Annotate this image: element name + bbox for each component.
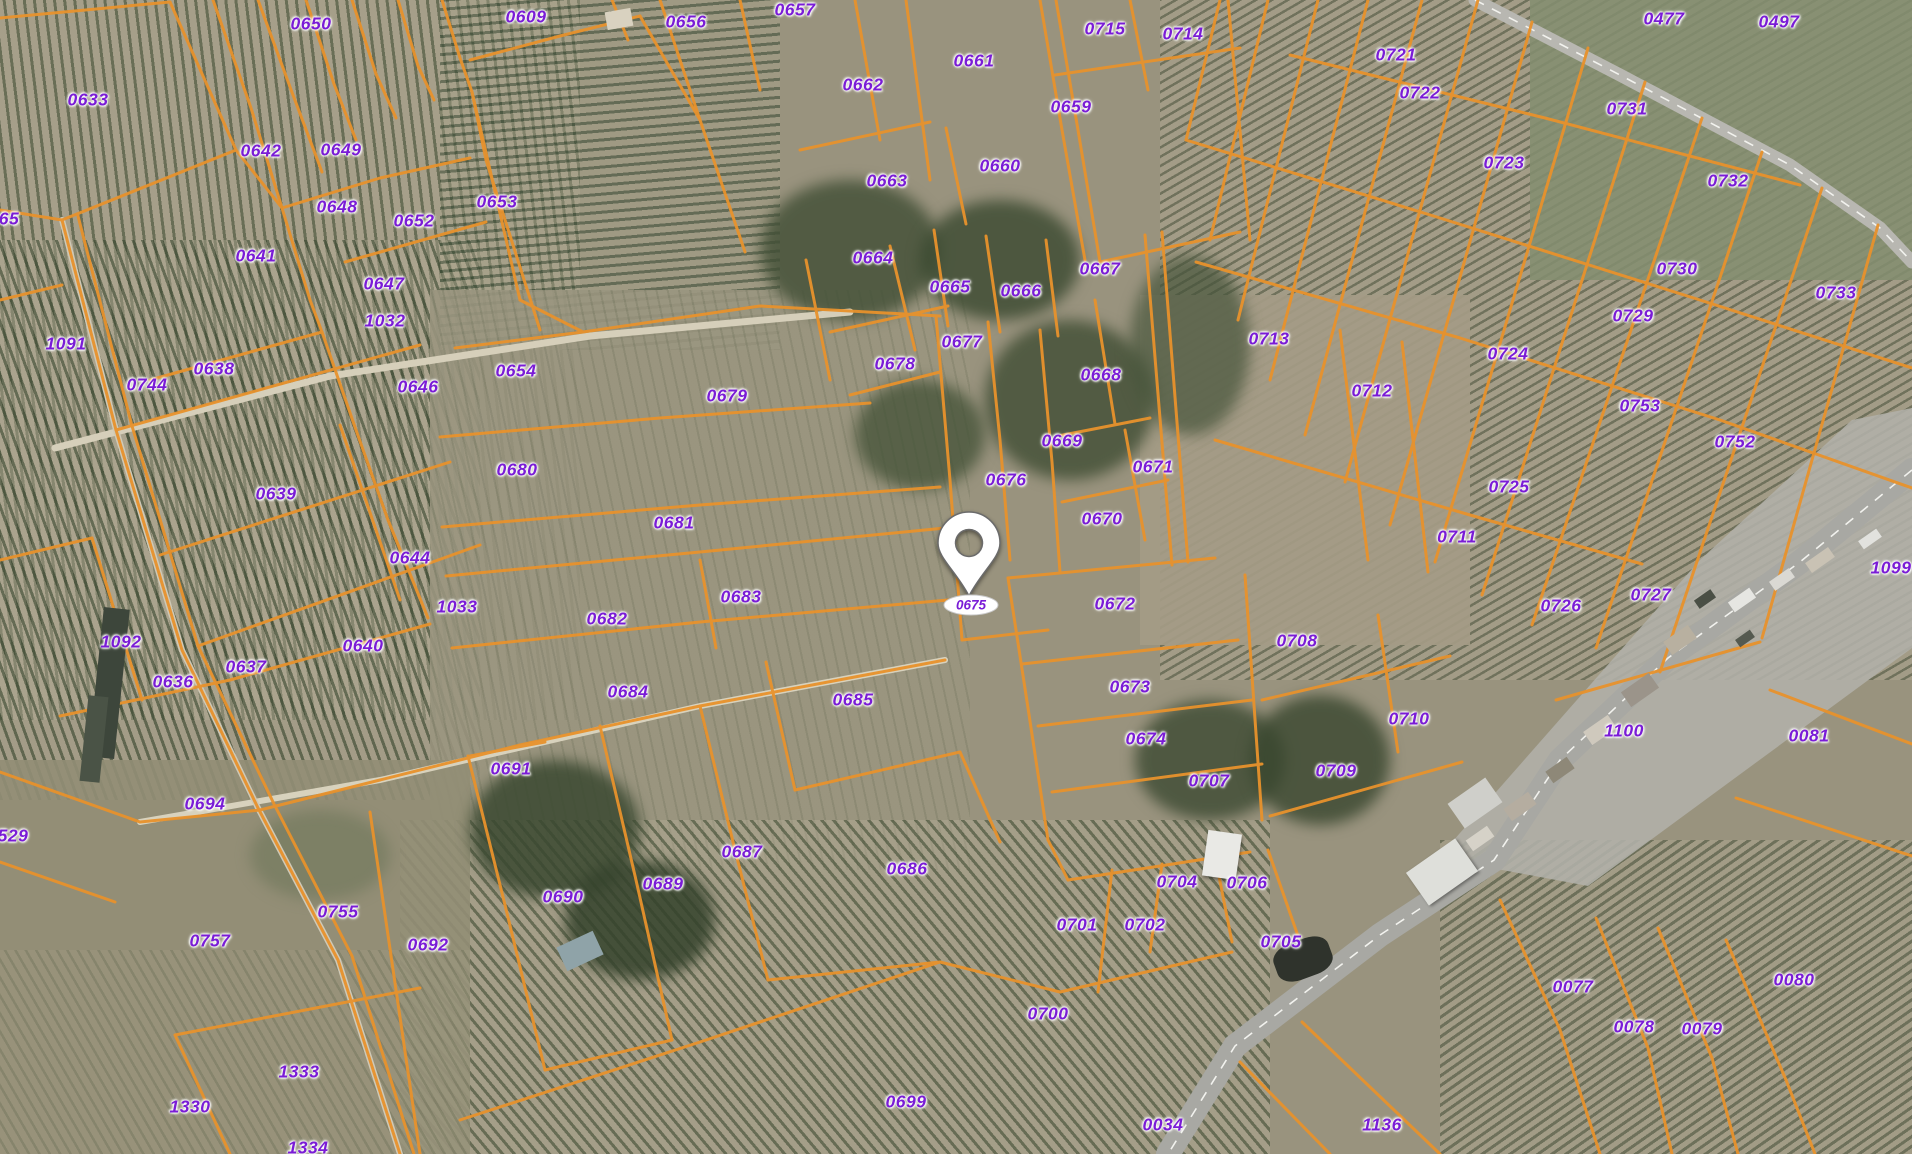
parcel-labels-layer: 0650060906560657066106620715071407210722… <box>0 0 1912 1154</box>
parcel-label: 1091 <box>46 334 87 355</box>
parcel-label: 0731 <box>1607 99 1648 120</box>
greenhouse <box>88 607 130 759</box>
parcel-label: 0078 <box>1614 1017 1655 1038</box>
parcel-label: 0669 <box>1042 431 1083 452</box>
parcel-label: 0640 <box>343 636 384 657</box>
parcel-label: 0670 <box>1082 509 1123 530</box>
parcel-label: 0666 <box>1001 281 1042 302</box>
parcel-label: 0657 <box>775 0 816 21</box>
parcel-label: 0497 <box>1759 12 1800 33</box>
shed <box>556 931 603 971</box>
parcel-label: 0674 <box>1126 729 1167 750</box>
parcel-label: 0678 <box>875 354 916 375</box>
scrap-pile <box>1583 715 1617 745</box>
parcel-label: 0715 <box>1085 19 1126 40</box>
scrap-pile <box>1503 792 1536 821</box>
scrap-pile <box>1663 625 1697 655</box>
parcel-label: 1099 <box>1871 558 1912 579</box>
parcel-label: 0668 <box>1081 365 1122 386</box>
parcel-label: 1330 <box>170 1097 211 1118</box>
parcel-label: 0744 <box>127 375 168 396</box>
field-smooth-0713 <box>1140 295 1470 645</box>
parcel-label: 0722 <box>1400 83 1441 104</box>
parcel-label: 1092 <box>101 632 142 653</box>
parcel-label: 0705 <box>1261 932 1302 953</box>
parcel-label: 0647 <box>364 274 405 295</box>
tree-cluster <box>1135 700 1285 820</box>
shrub-cluster <box>250 810 390 900</box>
parcel-label: 0732 <box>1708 171 1749 192</box>
marker-layer: 0675 <box>0 0 1912 1154</box>
pond <box>1269 931 1336 987</box>
field-smooth-center <box>430 290 970 870</box>
scrap-pile <box>1735 630 1755 648</box>
parcel-label: 0664 <box>853 248 894 269</box>
parcel-label: 0708 <box>1277 631 1318 652</box>
parcel-label: 0701 <box>1057 915 1098 936</box>
scrap-pile <box>1694 589 1716 609</box>
parcel-label: 0077 <box>1553 977 1594 998</box>
parcel-label: 529 <box>0 826 28 847</box>
parcel-label: 0711 <box>1437 527 1477 548</box>
vineyard-texture-bottomcenter <box>400 820 1270 1154</box>
parcel-label: 0656 <box>666 12 707 33</box>
parcel-label: 1333 <box>279 1062 320 1083</box>
parcel-label: 0726 <box>1541 596 1582 617</box>
parcel-label: 0699 <box>886 1092 927 1113</box>
parcel-label: 0646 <box>398 377 439 398</box>
parcel-label: 0639 <box>256 484 297 505</box>
parcel-label: 0633 <box>68 90 109 111</box>
parcel-boundaries <box>0 0 1912 1154</box>
parcel-label: 0709 <box>1316 761 1357 782</box>
parcel-label: 0081 <box>1789 726 1830 747</box>
parcel-label: 0683 <box>721 587 762 608</box>
field-smooth-topright <box>1530 0 1912 280</box>
parcel-label: 0671 <box>1133 457 1174 478</box>
scrap-pile <box>1466 826 1495 852</box>
location-pin-icon[interactable] <box>938 512 1000 596</box>
field-smooth-bottomleft <box>0 760 470 1154</box>
tree-cluster <box>1130 255 1250 435</box>
parcel-label: 0662 <box>843 75 884 96</box>
parcel-label: 0692 <box>408 935 449 956</box>
parcel-label: 1033 <box>437 597 478 618</box>
parcel-label: 0034 <box>1143 1115 1184 1136</box>
parcel-label: 0755 <box>318 902 359 923</box>
parcel-label: 0710 <box>1389 709 1430 730</box>
parcel-label: 0713 <box>1249 329 1290 350</box>
parcel-label: 0673 <box>1110 677 1151 698</box>
parcel-label: 0679 <box>707 386 748 407</box>
parcel-label: 0681 <box>654 513 695 534</box>
highway <box>1168 470 1912 1154</box>
scrap-pile <box>1545 757 1574 783</box>
tree-cluster <box>920 200 1080 320</box>
tree-cluster <box>1250 695 1390 825</box>
parcel-label: 0667 <box>1080 259 1121 280</box>
parcel-label: 0660 <box>980 156 1021 177</box>
parcel-label: 0644 <box>390 548 431 569</box>
scrap-pile <box>1621 673 1659 707</box>
parcel-label: 0733 <box>1816 283 1857 304</box>
parcel-label: 0687 <box>722 842 763 863</box>
parcel-label: 0609 <box>506 7 547 28</box>
parcel-label: 0724 <box>1488 344 1529 365</box>
parcel-label: 0636 <box>153 672 194 693</box>
parcel-label: 1334 <box>288 1138 329 1154</box>
farm-track-2 <box>140 660 945 822</box>
tree-cluster <box>470 760 640 900</box>
farm-lane <box>62 220 400 1154</box>
parcel-label: 0680 <box>497 460 538 481</box>
building <box>1448 778 1503 829</box>
parcel-label: 0672 <box>1095 594 1136 615</box>
parcel-label: 0677 <box>942 332 983 353</box>
parcel-label: 1136 <box>1362 1115 1402 1136</box>
building <box>1202 830 1242 880</box>
parcel-label: 0714 <box>1163 24 1204 45</box>
parcel-label: 0689 <box>643 874 684 895</box>
parcel-label: 0706 <box>1227 873 1268 894</box>
tree-cluster <box>985 320 1155 480</box>
parcel-label: 0730 <box>1657 259 1698 280</box>
parcel-label: 0691 <box>491 759 532 780</box>
parcel-label: 0661 <box>954 51 995 72</box>
parcel-label: 0685 <box>833 690 874 711</box>
top-right-road <box>1475 0 1912 262</box>
parcel-label: 1100 <box>1604 721 1644 742</box>
top-right-road-centerline <box>1475 0 1912 262</box>
vineyard-texture-bottomright <box>1440 840 1912 1154</box>
parcel-label: 0753 <box>1620 396 1661 417</box>
parcel-label: 0079 <box>1682 1019 1723 1040</box>
parcel-label: 0652 <box>394 211 435 232</box>
building <box>1406 838 1478 905</box>
parcel-label: 0684 <box>608 682 649 703</box>
greenhouse <box>80 695 109 783</box>
parcel-label: 0080 <box>1774 970 1815 991</box>
parcel-label: 0665 <box>930 277 971 298</box>
parcel-label: 0642 <box>241 141 282 162</box>
parcel-label: 0649 <box>321 140 362 161</box>
vineyard-texture-midleft <box>0 240 480 800</box>
parcel-label: 0477 <box>1644 9 1685 30</box>
parcel-label: 0752 <box>1715 432 1756 453</box>
parcel-label: 0729 <box>1613 306 1654 327</box>
parcel-label: 0637 <box>226 657 267 678</box>
building <box>605 8 634 30</box>
parcel-label: 0653 <box>477 192 518 213</box>
truck <box>1858 529 1882 550</box>
marker-parcel-number: 0675 <box>956 598 987 613</box>
farm-track-1 <box>55 312 850 448</box>
parcel-label: 0725 <box>1489 477 1530 498</box>
parcel-label: 0694 <box>185 794 226 815</box>
vineyard-texture-centertop <box>440 0 780 350</box>
parcel-label: 0648 <box>317 197 358 218</box>
parcel-label: 1032 <box>365 311 406 332</box>
parcel-label: 0682 <box>587 609 628 630</box>
parcel-label: 0704 <box>1157 872 1198 893</box>
parcel-label: 0663 <box>867 171 908 192</box>
parcel-label: 0727 <box>1631 585 1672 606</box>
marker-parcel-badge[interactable]: 0675 <box>944 595 998 615</box>
parcel-label: 0650 <box>291 14 332 35</box>
parcel-label: 0702 <box>1125 915 1166 936</box>
truck <box>1769 568 1795 591</box>
scrapyard-apron <box>1438 408 1912 886</box>
parcel-label: 0707 <box>1189 771 1230 792</box>
parcel-label: 0676 <box>986 470 1027 491</box>
truck <box>1805 547 1835 573</box>
parcel-label: 0700 <box>1028 1004 1069 1025</box>
map-vector-layer <box>0 0 1912 1154</box>
parcel-label: 0712 <box>1352 381 1393 402</box>
field-texture-bottomleft-faint <box>0 950 470 1154</box>
vineyard-texture-topleft <box>0 0 580 720</box>
tree-cluster <box>760 180 940 320</box>
truck <box>1728 588 1756 613</box>
tree-cluster <box>565 860 715 980</box>
parcel-label: 0690 <box>543 887 584 908</box>
parcel-label: 0654 <box>496 361 537 382</box>
parcel-label: 0686 <box>887 859 928 880</box>
parcel-label: 65 <box>0 209 19 230</box>
parcel-label: 0638 <box>194 359 235 380</box>
parcel-label: 0721 <box>1376 45 1417 66</box>
parcel-label: 0659 <box>1051 97 1092 118</box>
field-texture-center-faint <box>430 290 970 870</box>
parcel-label: 0757 <box>190 931 231 952</box>
parcel-label: 0723 <box>1484 153 1525 174</box>
vineyard-texture-right <box>1160 0 1912 680</box>
highway-centerline <box>1168 470 1912 1154</box>
tree-cluster <box>855 380 985 490</box>
parcel-label: 0641 <box>236 246 277 267</box>
cadastral-map-canvas[interactable]: 0650060906560657066106620715071407210722… <box>0 0 1912 1154</box>
roads-group <box>55 0 1912 1154</box>
